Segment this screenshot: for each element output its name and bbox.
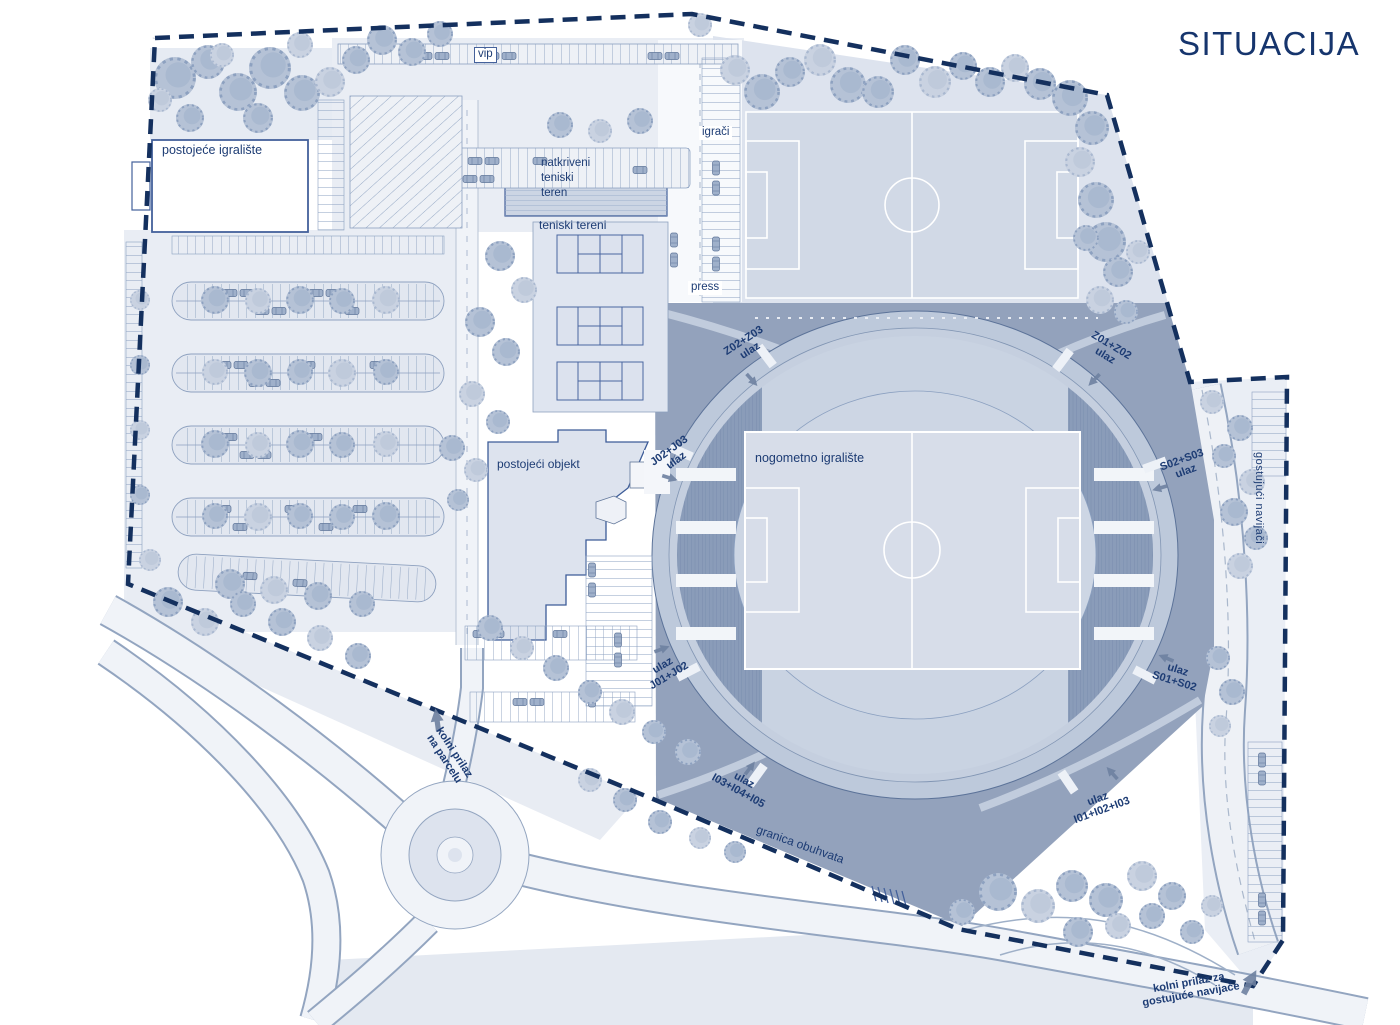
label-vip: vip (474, 47, 497, 63)
main-pitch (745, 432, 1080, 669)
label-away-fans-zone: gostujući navijači (1252, 452, 1265, 544)
label-tennis-courts: teniski tereni (539, 218, 606, 232)
page-title: SITUACIJA (1178, 24, 1360, 64)
site-plan: SITUACIJA postojeće igralište vip igrači… (0, 0, 1400, 1025)
label-covered-tennis-court: natkriveni teniski teren (541, 156, 590, 201)
label-football-pitch: nogometno igralište (755, 451, 864, 466)
players-parking (702, 58, 740, 302)
label-press: press (688, 281, 722, 295)
label-existing-playground: postojeće igralište (162, 143, 262, 158)
training-pitch (746, 112, 1078, 298)
label-existing-building: postojeći objekt (497, 457, 580, 471)
roundabout (381, 781, 529, 929)
tennis-courts (557, 235, 643, 400)
stadium (652, 311, 1178, 799)
label-players: igrači (699, 126, 732, 140)
